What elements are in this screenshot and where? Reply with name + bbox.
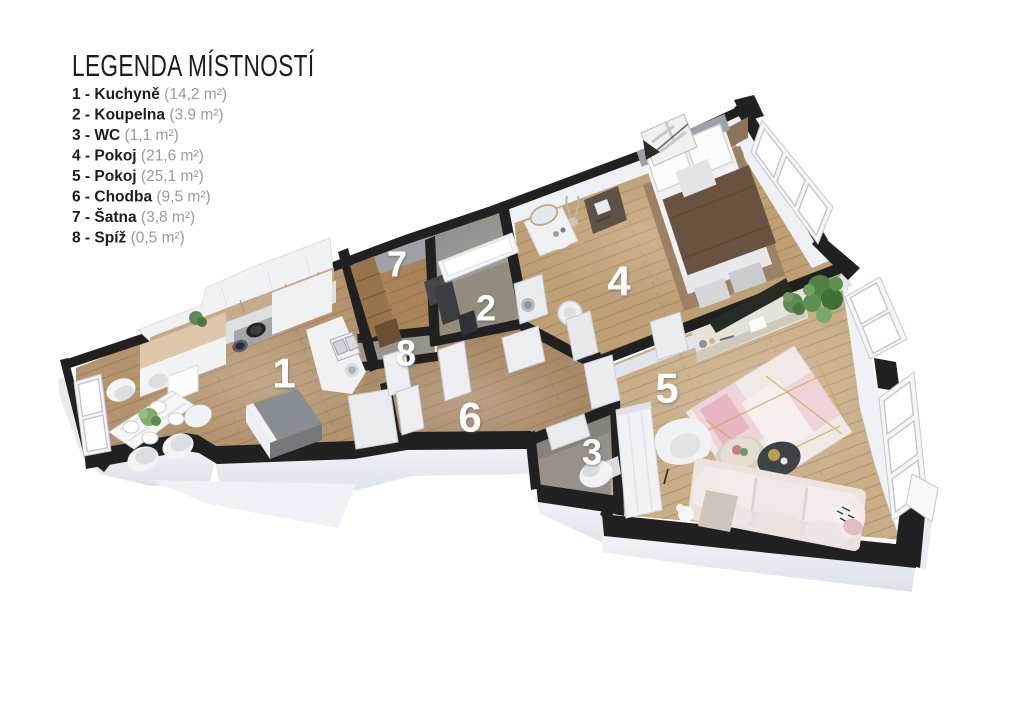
- svg-text:6: 6: [458, 394, 481, 441]
- svg-text:LEGENDA MÍSTNOSTÍ: LEGENDA MÍSTNOSTÍ: [72, 47, 314, 82]
- svg-text:6 - Chodba (9,5 m²): 6 - Chodba (9,5 m²): [72, 189, 211, 206]
- svg-text:5: 5: [655, 365, 678, 412]
- svg-text:3: 3: [582, 432, 602, 473]
- svg-text:2: 2: [476, 288, 496, 329]
- svg-text:3 - WC (1,1 m²): 3 - WC (1,1 m²): [72, 127, 179, 144]
- svg-text:8 - Spíž (0,5 m²): 8 - Spíž (0,5 m²): [72, 230, 185, 247]
- svg-text:7 - Šatna (3,8 m²): 7 - Šatna (3,8 m²): [72, 208, 195, 226]
- svg-text:7: 7: [387, 244, 407, 285]
- svg-text:8: 8: [396, 333, 416, 374]
- svg-text:1: 1: [272, 350, 295, 397]
- svg-text:4: 4: [607, 258, 631, 305]
- svg-text:2 - Koupelna (3.9 m²): 2 - Koupelna (3.9 m²): [72, 107, 224, 124]
- svg-text:5 - Pokoj (25,1 m²): 5 - Pokoj (25,1 m²): [72, 168, 204, 185]
- svg-text:1 - Kuchyně (14,2 m²): 1 - Kuchyně (14,2 m²): [72, 86, 227, 103]
- svg-text:4 - Pokoj (21,6 m²): 4 - Pokoj (21,6 m²): [72, 148, 204, 165]
